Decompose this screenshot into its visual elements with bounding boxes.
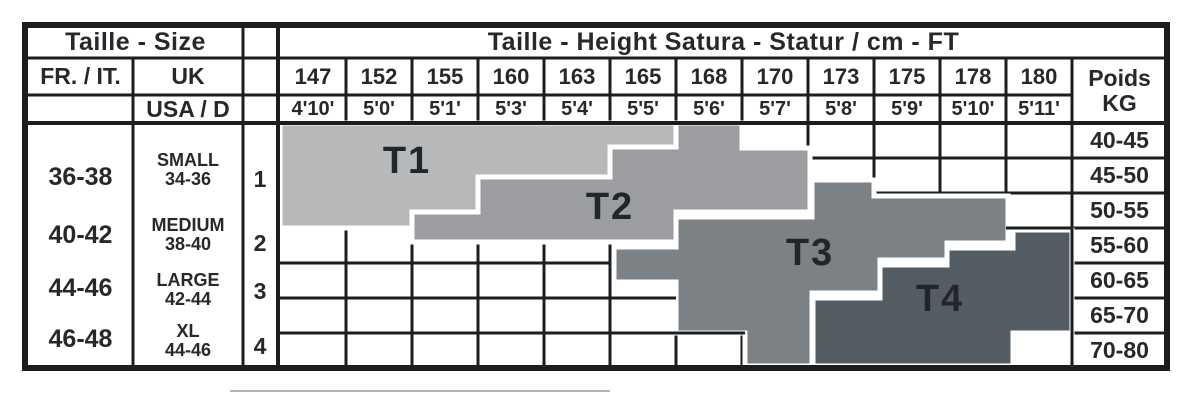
height-cm-147: 147 xyxy=(280,58,346,95)
uk-size-name: XL xyxy=(176,322,199,341)
uk-size-range: 42-44 xyxy=(165,290,211,309)
kg-label: KG xyxy=(1102,91,1137,115)
height-ft-56: 5'6' xyxy=(676,95,742,123)
poids-label: Poids xyxy=(1088,66,1151,90)
header-uk: UK xyxy=(133,58,243,95)
height-ft-50: 5'0' xyxy=(346,95,412,123)
weight-row-6: 65-70 xyxy=(1072,298,1167,333)
header-usa-d: USA / D xyxy=(133,95,243,123)
height-cm-170: 170 xyxy=(742,58,808,95)
weight-row-7: 70-80 xyxy=(1072,333,1167,368)
height-ft-53: 5'3' xyxy=(478,95,544,123)
height-ft-57: 5'7' xyxy=(742,95,808,123)
uk-size-small: SMALL 34-36 xyxy=(133,150,243,190)
height-ft-58: 5'8' xyxy=(808,95,874,123)
header-fr-it: FR. / IT. xyxy=(28,58,133,95)
fr-it-size-2: 40-42 xyxy=(28,220,133,250)
height-cm-152: 152 xyxy=(346,58,412,95)
fr-it-size-1: 36-38 xyxy=(28,162,133,192)
height-cm-160: 160 xyxy=(478,58,544,95)
weight-row-4: 55-60 xyxy=(1072,228,1167,263)
height-cm-163: 163 xyxy=(544,58,610,95)
usa-d-size-2: 2 xyxy=(243,228,277,258)
height-ft-54: 5'4' xyxy=(544,95,610,123)
band-label-t3: T3 xyxy=(770,234,850,274)
height-cm-165: 165 xyxy=(610,58,676,95)
weight-row-2: 45-50 xyxy=(1072,158,1167,193)
height-ft-51: 5'1' xyxy=(412,95,478,123)
height-cm-175: 175 xyxy=(874,58,940,95)
weight-row-5: 60-65 xyxy=(1072,263,1167,298)
uk-size-large: LARGE 42-44 xyxy=(133,270,243,310)
height-cm-155: 155 xyxy=(412,58,478,95)
height-ft-410: 4'10' xyxy=(280,95,346,123)
title-right: Taille - Height Satura - Statur / cm - F… xyxy=(280,26,1167,58)
weight-row-3: 50-55 xyxy=(1072,193,1167,228)
height-ft-59: 5'9' xyxy=(874,95,940,123)
uk-size-range: 44-46 xyxy=(165,341,211,360)
uk-size-range: 34-36 xyxy=(165,170,211,189)
header-poids-kg: Poids KG xyxy=(1072,58,1167,123)
uk-size-name: SMALL xyxy=(157,151,219,170)
band-label-t1: T1 xyxy=(367,142,447,182)
band-label-t2: T2 xyxy=(570,188,650,228)
height-ft-510: 5'10' xyxy=(940,95,1006,123)
height-cm-173: 173 xyxy=(808,58,874,95)
band-label-t4: T4 xyxy=(900,280,980,320)
height-cm-168: 168 xyxy=(676,58,742,95)
uk-size-medium: MEDIUM 38-40 xyxy=(133,215,243,255)
usa-d-size-3: 3 xyxy=(243,276,277,306)
height-ft-511: 5'11' xyxy=(1006,95,1072,123)
weight-row-1: 40-45 xyxy=(1072,123,1167,158)
uk-size-name: LARGE xyxy=(157,271,220,290)
uk-size-range: 38-40 xyxy=(165,235,211,254)
fr-it-size-4: 46-48 xyxy=(28,324,133,354)
height-cm-180: 180 xyxy=(1006,58,1072,95)
height-ft-55: 5'5' xyxy=(610,95,676,123)
usa-d-size-4: 4 xyxy=(243,331,277,361)
title-left: Taille - Size xyxy=(28,26,243,58)
usa-d-size-1: 1 xyxy=(243,164,277,194)
uk-size-xl: XL 44-46 xyxy=(133,321,243,361)
uk-size-name: MEDIUM xyxy=(152,216,225,235)
height-cm-178: 178 xyxy=(940,58,1006,95)
size-chart: Taille - Size Taille - Height Satura - S… xyxy=(0,0,1200,400)
fr-it-size-3: 44-46 xyxy=(28,273,133,303)
